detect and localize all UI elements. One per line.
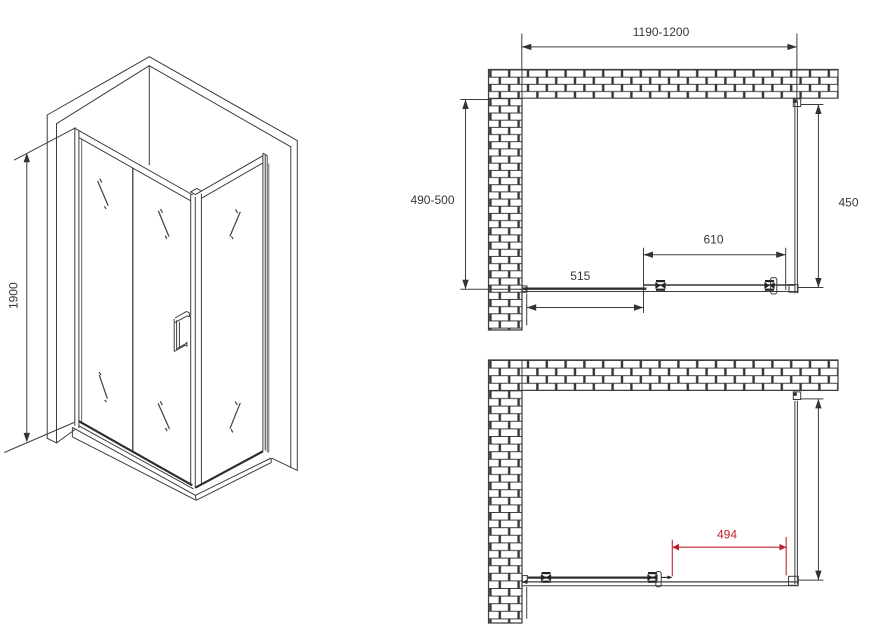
svg-text:515: 515 <box>570 269 590 283</box>
svg-text:1190-1200: 1190-1200 <box>633 25 690 39</box>
svg-text:1900: 1900 <box>7 282 21 309</box>
svg-text:450: 450 <box>839 195 859 209</box>
svg-text:610: 610 <box>703 232 723 246</box>
svg-text:490-500: 490-500 <box>410 193 454 207</box>
svg-text:494: 494 <box>717 528 737 542</box>
